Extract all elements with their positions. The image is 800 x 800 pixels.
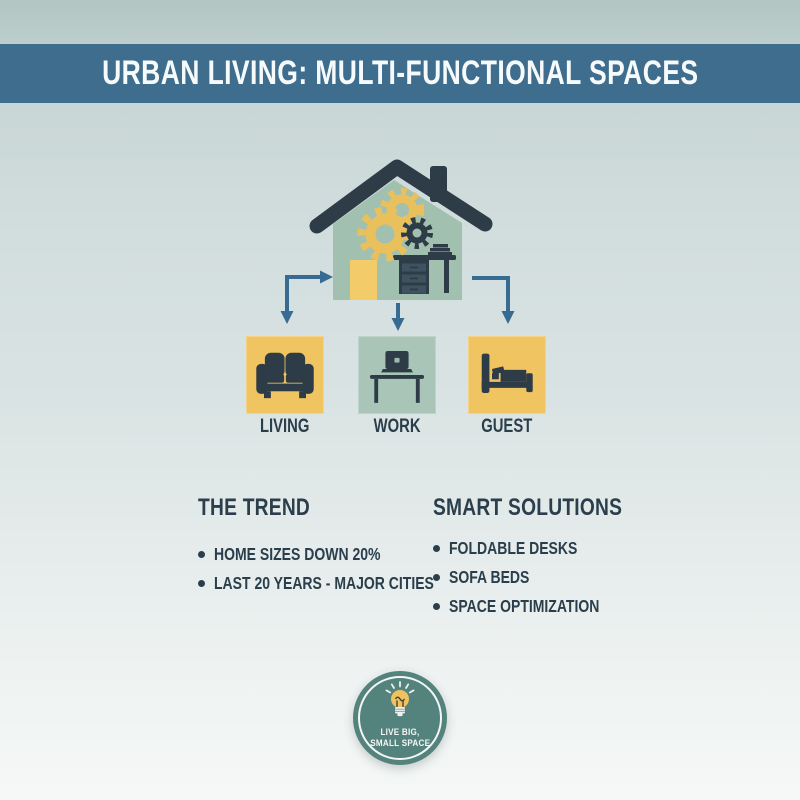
bullet-dot (198, 551, 205, 558)
bullet-foldable-desks: FOLDABLE DESKS (433, 538, 609, 559)
bullet-space-optimization: SPACE OPTIMIZATION (433, 596, 637, 617)
section-heading-trend: THE TREND (198, 494, 338, 522)
lightbulb-icon (380, 680, 420, 726)
arrow-down-icon (392, 303, 405, 331)
bullet-sofa-beds: SOFA BEDS (433, 567, 549, 588)
section-heading-solutions: SMART SOLUTIONS (433, 494, 670, 522)
bullet-home-sizes: HOME SIZES DOWN 20% (198, 544, 422, 565)
room-label-living: LIVING (246, 416, 324, 438)
door-icon (350, 260, 377, 300)
room-box-living (246, 336, 324, 414)
room-box-guest (468, 336, 546, 414)
sofa-icon (252, 345, 318, 405)
arrow-right-icon (472, 278, 515, 324)
badge-tagline: LIVE BIG, SMALL SPACE (353, 727, 447, 749)
room-label-work: WORK (358, 416, 436, 438)
bullet-dot (433, 545, 440, 552)
bullet-dot (433, 603, 440, 610)
infographic-poster: URBAN LIVING: MULTI-FUNCTIONAL SPACES (0, 0, 800, 800)
bed-icon (474, 345, 540, 405)
bullet-dot (198, 580, 205, 587)
arrow-left-icon (281, 271, 334, 325)
desk-laptop-icon (364, 344, 430, 406)
room-box-work (358, 336, 436, 414)
bullet-dot (433, 574, 440, 581)
room-label-guest: GUEST (468, 416, 546, 438)
tagline-badge: LIVE BIG, SMALL SPACE (353, 671, 447, 765)
